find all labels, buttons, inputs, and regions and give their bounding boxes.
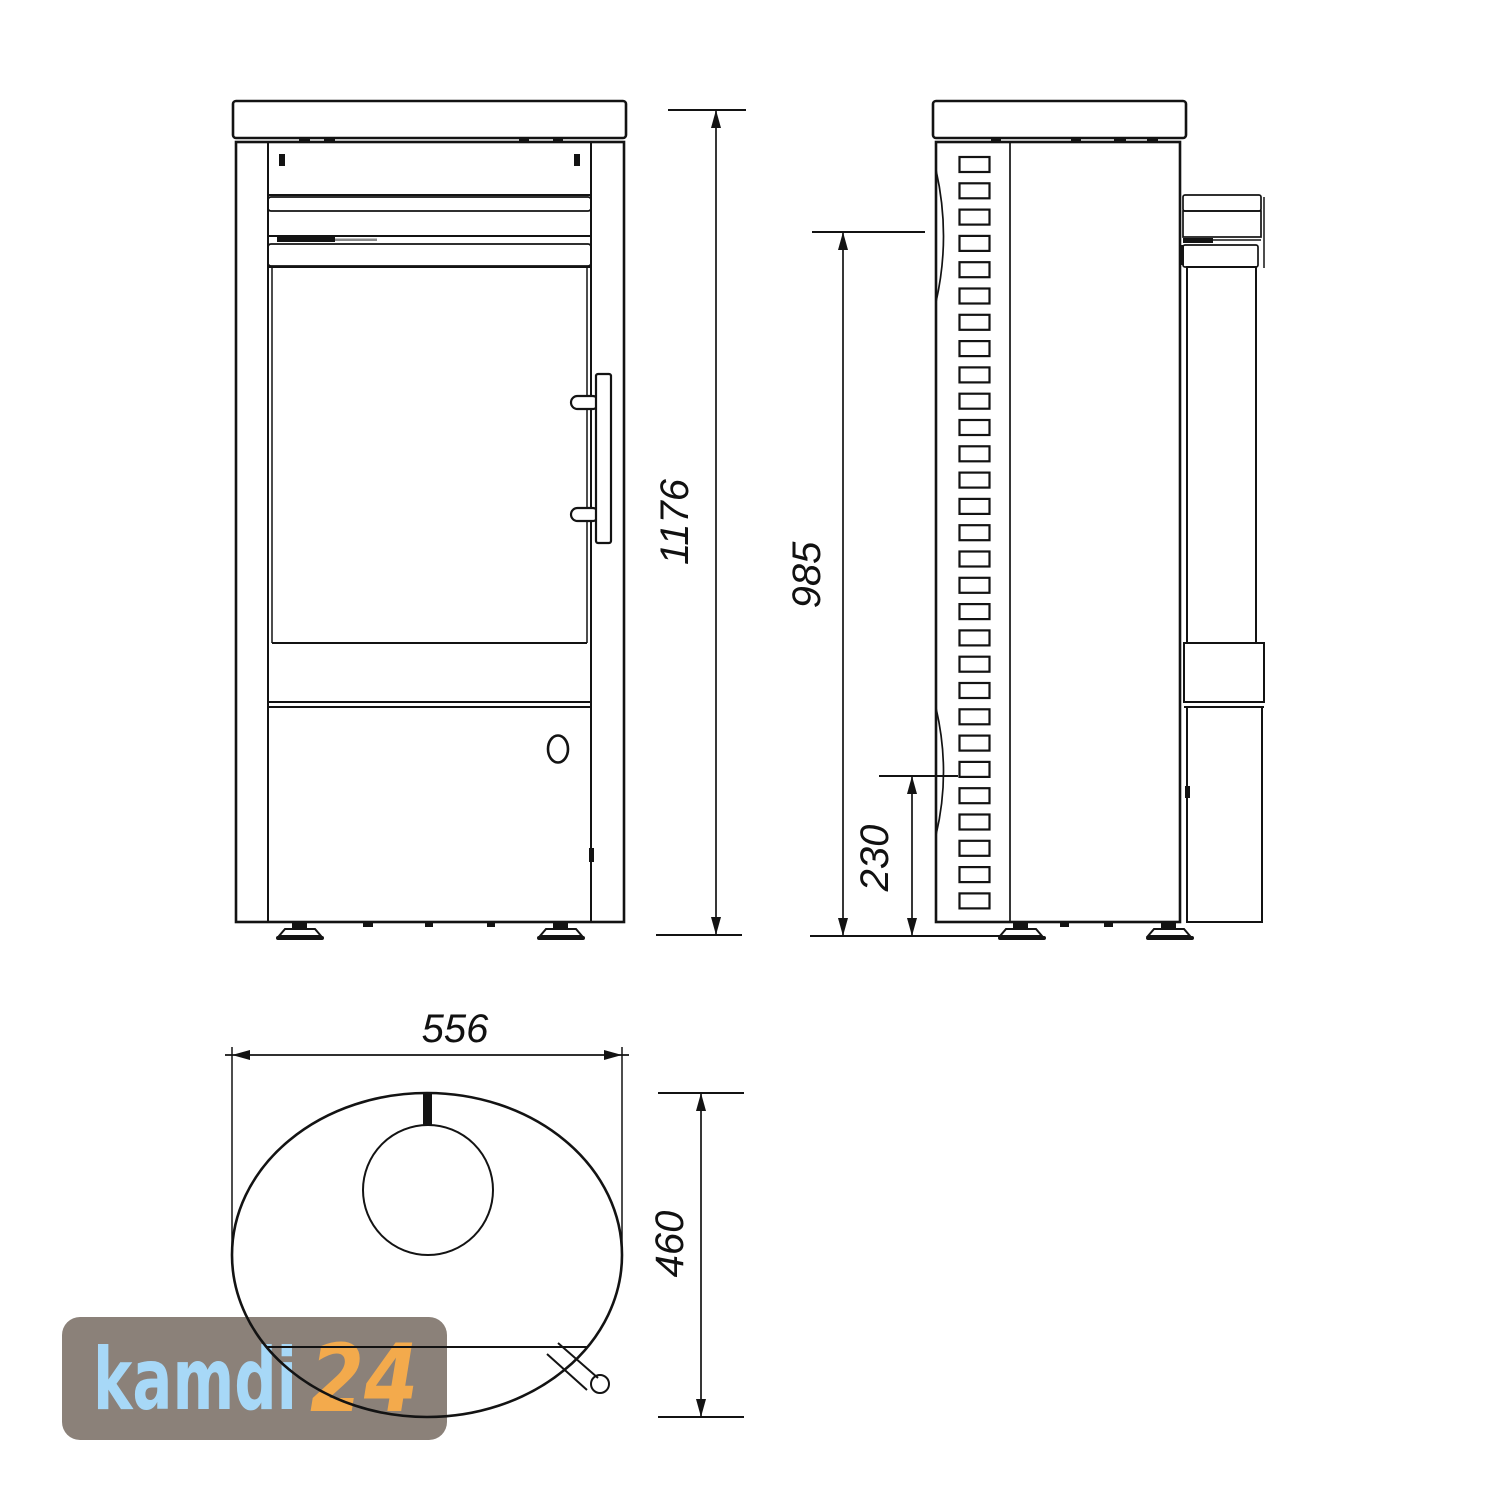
vent-slot [960, 289, 990, 304]
vent-slot [960, 236, 990, 251]
dimension-depth: 460 [648, 1093, 744, 1417]
watermark-number-text: 24 [310, 1325, 418, 1434]
door-handle-bar [596, 374, 611, 543]
adjustable-foot [276, 923, 324, 940]
base-mark [1104, 922, 1113, 927]
dimension-label-total-height: 1176 [653, 478, 697, 565]
hinge-mark [589, 848, 594, 862]
base-mark [425, 922, 433, 927]
stove-technical-drawing: kamdi 24 [0, 0, 1500, 1500]
arrowhead-up-icon [838, 232, 848, 250]
storage-door-knob [548, 736, 568, 763]
side-top-plate [933, 101, 1186, 138]
arrowhead-down-icon [838, 918, 848, 936]
base-mark [487, 922, 495, 927]
base-mark [363, 922, 373, 927]
arrowhead-left-icon [232, 1050, 250, 1060]
vent-slot [960, 683, 990, 698]
front-body [236, 142, 624, 922]
vent-slot [960, 525, 990, 540]
fastener-mark [574, 154, 580, 166]
base-mark [1060, 922, 1069, 927]
dimension-label-flue-height: 985 [785, 541, 829, 608]
vent-slot [960, 578, 990, 593]
front-view: 1176 [233, 101, 746, 940]
plate-seam-slot [423, 1094, 432, 1126]
vent-slot [960, 367, 990, 382]
vent-slot [960, 394, 990, 409]
arrowhead-down-icon [907, 918, 917, 936]
vent-slot [960, 841, 990, 856]
vent-slot [960, 446, 990, 461]
arrowhead-right-icon [604, 1050, 622, 1060]
vent-slot [960, 657, 990, 672]
vent-slot [960, 604, 990, 619]
vent-slot [960, 815, 990, 830]
door-handle-top [547, 1343, 609, 1393]
vent-slot [960, 262, 990, 277]
vent-slot [960, 709, 990, 724]
vent-slot [960, 183, 990, 198]
air-control-band-1 [268, 197, 591, 211]
air-slider-track [335, 239, 377, 242]
handle-mount-peg [571, 508, 599, 521]
watermark-logo: kamdi 24 [62, 1317, 447, 1440]
vent-slot [960, 552, 990, 567]
dimension-width: 556 [225, 1007, 629, 1258]
air-control-band-3 [268, 244, 591, 266]
arrowhead-down-icon [711, 917, 721, 935]
dimension-label-width: 556 [422, 1007, 489, 1051]
dimension-label-base-height: 230 [853, 825, 897, 893]
arrowhead-down-icon [696, 1399, 706, 1417]
adjustable-foot [537, 923, 585, 940]
adjustable-foot [1146, 923, 1194, 940]
side-vents [960, 157, 990, 908]
arrowhead-up-icon [907, 776, 917, 794]
side-body [936, 142, 1180, 922]
vent-slot [960, 499, 990, 514]
vent-slot [960, 762, 990, 777]
adjustable-foot [998, 923, 1046, 940]
side-view: 985 230 [785, 101, 1264, 940]
vent-slot [960, 736, 990, 751]
vent-slot [960, 157, 990, 172]
vent-slot [960, 341, 990, 356]
dimension-total-height: 1176 [653, 110, 746, 935]
front-top-plate [233, 101, 626, 138]
vent-slot [960, 315, 990, 330]
fastener-mark [279, 154, 285, 166]
vent-slot [960, 630, 990, 645]
rear-heat-shield [1180, 195, 1264, 922]
vent-slot [960, 210, 990, 225]
vent-slot [960, 893, 990, 908]
dimension-drawing-page: kamdi 24 [0, 0, 1500, 1500]
vent-slot [960, 867, 990, 882]
dimension-label-depth: 460 [648, 1211, 692, 1278]
vent-slot [960, 788, 990, 803]
arrowhead-up-icon [696, 1093, 706, 1111]
vent-slot [960, 473, 990, 488]
vent-slot [960, 420, 990, 435]
air-slider-mark [277, 237, 335, 242]
flue-collar-circle [363, 1125, 493, 1255]
arrowhead-up-icon [711, 110, 721, 128]
handle-mount-peg [571, 396, 599, 409]
